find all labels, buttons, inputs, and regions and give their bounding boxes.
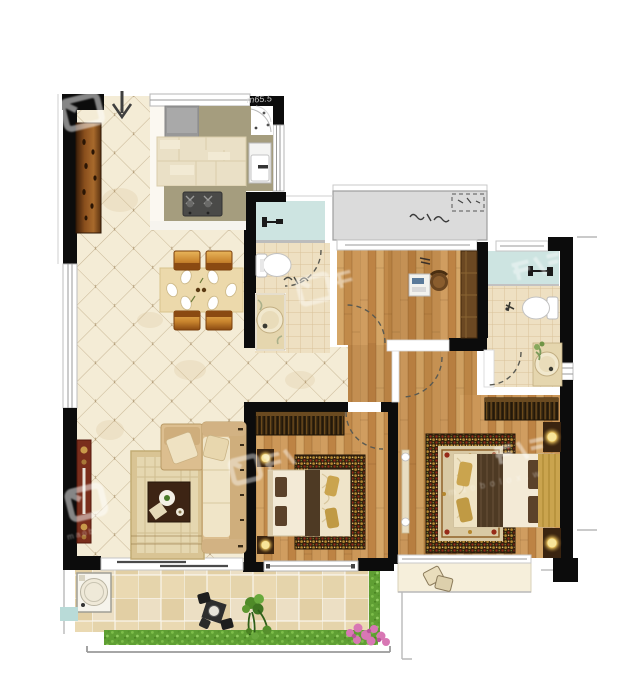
svg-text:m65.5: m65.5: [246, 93, 273, 105]
